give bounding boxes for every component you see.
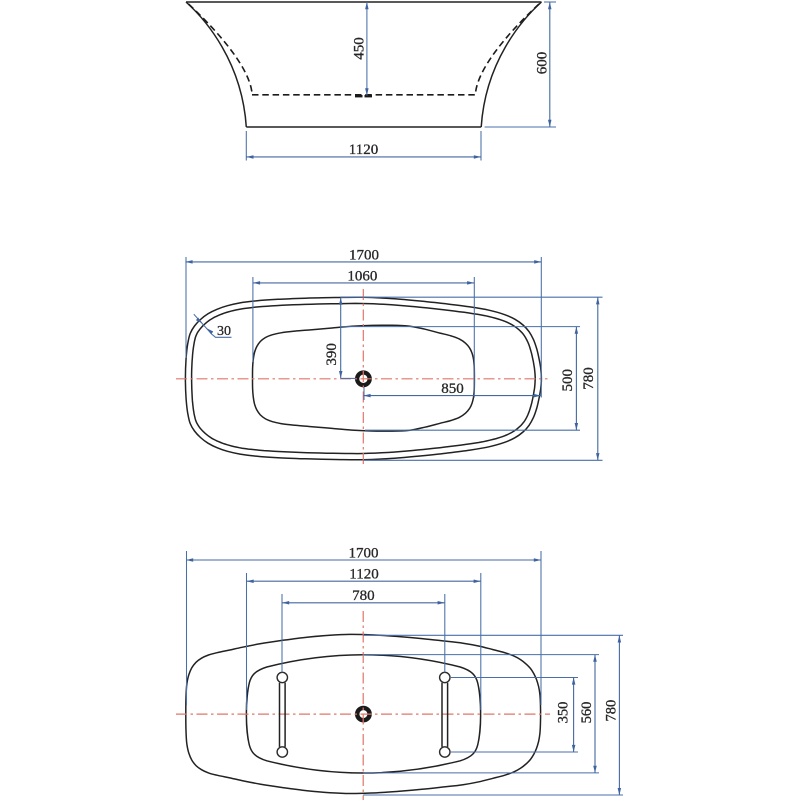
svg-text:1060: 1060	[347, 268, 377, 284]
svg-text:1700: 1700	[349, 247, 379, 263]
svg-text:780: 780	[603, 700, 619, 722]
svg-text:600: 600	[535, 52, 551, 75]
svg-text:450: 450	[352, 37, 368, 60]
svg-text:1700: 1700	[349, 545, 379, 561]
svg-text:780: 780	[581, 367, 597, 390]
svg-text:1120: 1120	[349, 142, 378, 158]
svg-text:350: 350	[556, 702, 572, 724]
svg-text:780: 780	[352, 588, 375, 604]
svg-text:30: 30	[217, 324, 231, 339]
svg-text:560: 560	[579, 702, 595, 724]
svg-text:500: 500	[560, 369, 576, 392]
svg-text:390: 390	[324, 343, 340, 366]
svg-text:1120: 1120	[349, 567, 378, 583]
svg-text:850: 850	[441, 381, 464, 397]
